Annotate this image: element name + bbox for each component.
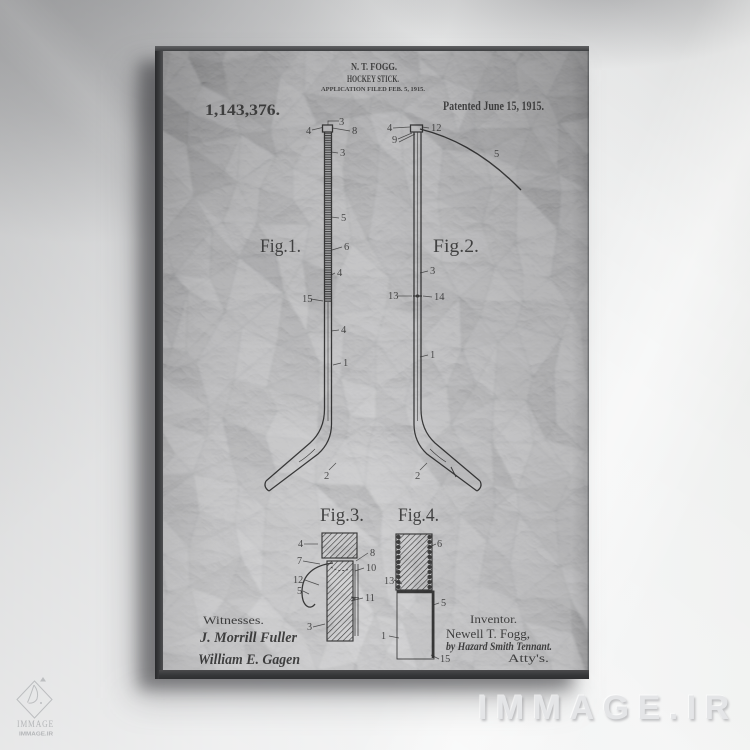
svg-text:IMMAGE.IR: IMMAGE.IR (19, 732, 53, 738)
svg-text:IMMAGE: IMMAGE (17, 720, 54, 730)
